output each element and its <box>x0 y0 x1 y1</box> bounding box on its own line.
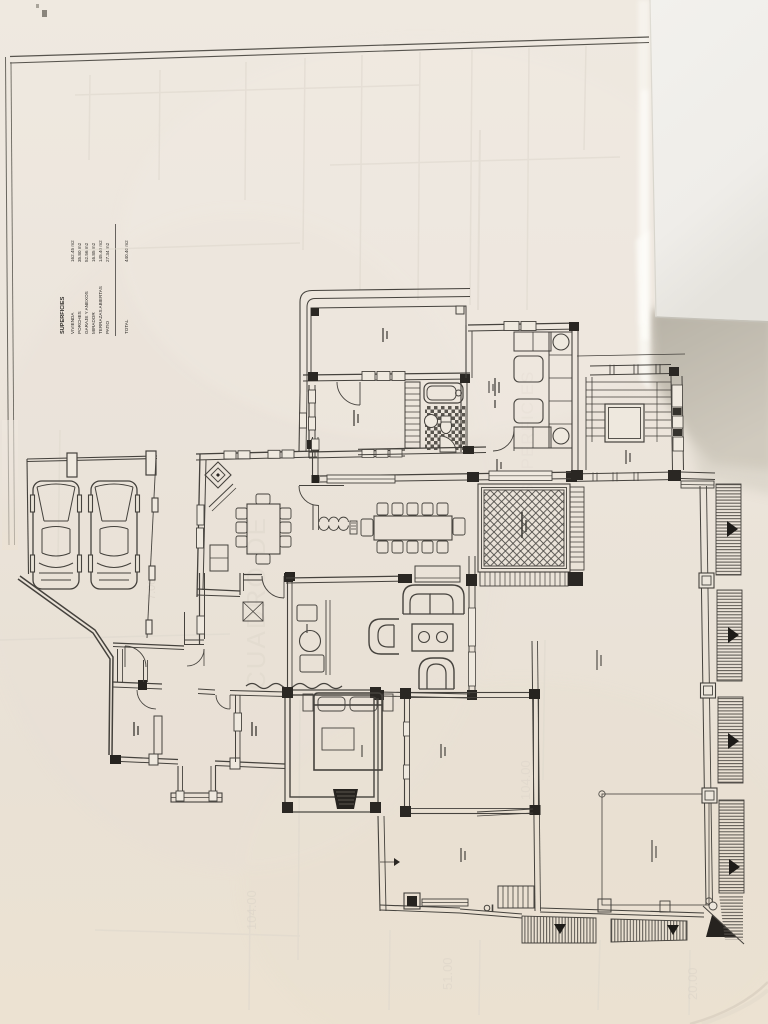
svg-text:162.45 m2: 162.45 m2 <box>70 240 75 262</box>
svg-text:35.80 m2: 35.80 m2 <box>77 242 82 262</box>
svg-text:27.34 m2: 27.34 m2 <box>105 242 110 262</box>
svg-text:51.00: 51.00 <box>440 957 455 990</box>
svg-text:145.40 m2: 145.40 m2 <box>98 240 103 262</box>
svg-text:SUPERFICIES: SUPERFICIES <box>60 296 66 334</box>
svg-text:PORCHES: PORCHES <box>77 311 82 334</box>
svg-text:GARAJE Y ANEXOS: GARAJE Y ANEXOS <box>84 291 89 334</box>
svg-text:CUADRO DE: CUADRO DE <box>241 516 271 690</box>
svg-text:16.85 m2: 16.85 m2 <box>91 242 96 262</box>
svg-text:TERRAZAS ABIERTAS: TERRAZAS ABIERTAS <box>98 286 103 334</box>
svg-text:440.40 m2: 440.40 m2 <box>124 240 129 262</box>
svg-text:VIVIENDA: VIVIENDA <box>70 312 75 334</box>
svg-text:PATIO: PATIO <box>105 320 110 334</box>
svg-text:TOTAL: TOTAL <box>124 319 129 334</box>
svg-text:MIRADOR: MIRADOR <box>91 312 96 334</box>
svg-text:104.00: 104.00 <box>518 760 533 800</box>
svg-text:104.00: 104.00 <box>244 890 259 930</box>
svg-text:52.56 m2: 52.56 m2 <box>84 242 89 262</box>
svg-text:7.00: 7.00 <box>146 579 158 600</box>
svg-text:20.00: 20.00 <box>685 967 700 1000</box>
